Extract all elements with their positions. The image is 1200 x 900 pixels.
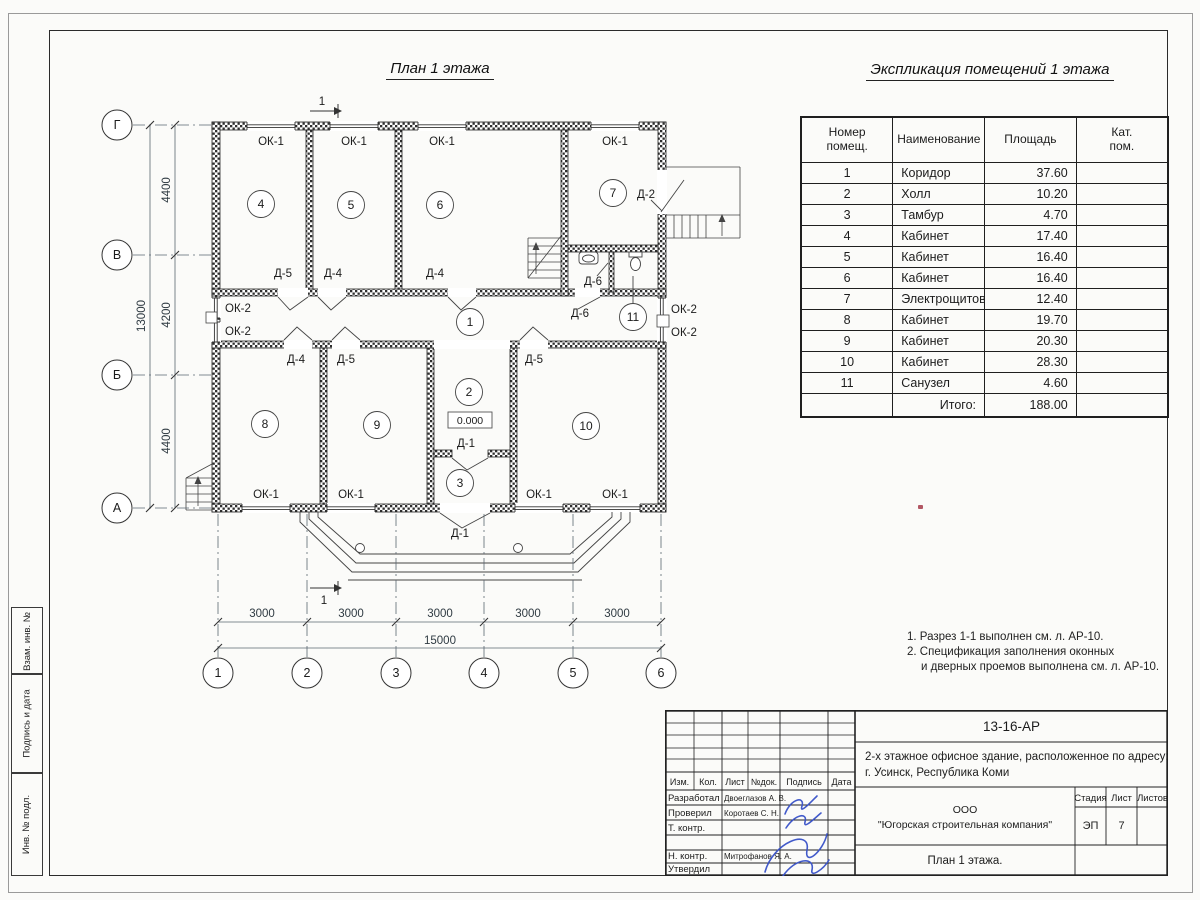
- wall-corridor-top: [212, 289, 568, 296]
- axis-label: А: [113, 501, 122, 515]
- axis-label: В: [113, 248, 121, 262]
- signature-scribble: [765, 834, 827, 872]
- window-label: ОК-2: [225, 326, 251, 338]
- stairs: [186, 167, 740, 510]
- person-name: Коротаев С. Н.: [724, 809, 779, 818]
- door-label: Д-4: [324, 268, 343, 280]
- window-label: ОК-1: [429, 136, 455, 148]
- window-label: ОК-1: [602, 136, 628, 148]
- room-number: 7: [610, 186, 617, 200]
- room-number: 3: [457, 476, 464, 490]
- section-label: 1: [319, 96, 325, 108]
- dimension-labels: 4400 4200 4400 13000 3000 3000 3000 3000…: [136, 177, 630, 647]
- axis-label: 5: [570, 666, 577, 680]
- axis-label: 6: [658, 666, 665, 680]
- level-mark: 0.000: [448, 412, 492, 428]
- door-d6-leader: [597, 263, 608, 276]
- room-number: 9: [374, 418, 381, 432]
- window-label: ОК-2: [671, 327, 697, 339]
- section-label: 1: [321, 595, 327, 607]
- dim-label: 3000: [249, 608, 275, 620]
- room-number: 5: [348, 198, 355, 212]
- wall-room7-left: [561, 130, 568, 296]
- company-name: ООО: [953, 804, 978, 816]
- col-header: Лист: [725, 777, 745, 787]
- axis-label: 3: [393, 666, 400, 680]
- room-number: 2: [466, 385, 473, 399]
- window-label: ОК-1: [602, 489, 628, 501]
- axis-label: 2: [304, 666, 311, 680]
- window-label: ОК-1: [341, 136, 367, 148]
- sheet-label: Лист: [1111, 793, 1132, 804]
- room-number: 11: [627, 310, 640, 324]
- door-label: Д-4: [426, 268, 445, 280]
- role-label: Н. контр.: [668, 851, 707, 862]
- wall-hall-left: [427, 348, 434, 504]
- window-label: ОК-1: [338, 489, 364, 501]
- window-label: ОК-2: [225, 303, 251, 315]
- door-label: Д-5: [337, 354, 355, 366]
- door-label: Д-4: [287, 354, 306, 366]
- dimension-lines: [150, 125, 661, 648]
- walls: [212, 122, 666, 512]
- door-label: Д-6: [571, 308, 589, 320]
- dim-label: 4400: [161, 428, 173, 454]
- window-label: ОК-1: [258, 136, 284, 148]
- door-label: Д-5: [274, 268, 292, 280]
- wall-room7-bottom: [568, 245, 658, 252]
- dim-label: 3000: [338, 608, 364, 620]
- wall-divider-8-9: [320, 348, 327, 504]
- door-label: Д-1: [457, 438, 475, 450]
- toilet-bowl-icon: [631, 258, 641, 271]
- porch-column: [356, 544, 365, 553]
- role-label: Т. контр.: [668, 823, 705, 834]
- drawing-title: План 1 этажа.: [928, 855, 1003, 867]
- project-description: 2-х этажное офисное здание, расположенно…: [865, 751, 1168, 763]
- role-label: Разработал: [668, 793, 720, 804]
- person-name: Двоеглазов А. В.: [724, 794, 786, 803]
- wall-divider-5-6: [395, 130, 402, 289]
- stage-label: Стадия: [1074, 793, 1106, 804]
- col-header: Изм.: [670, 777, 689, 787]
- sheets-label: Листов: [1137, 793, 1168, 804]
- dim-label: 15000: [424, 635, 456, 647]
- axis-label: Б: [113, 368, 121, 382]
- room-number: 8: [262, 417, 269, 431]
- window-label: ОК-1: [253, 489, 279, 501]
- document-number: 13-16-АР: [983, 719, 1040, 734]
- wall-hall-right: [510, 348, 517, 504]
- company-name: "Югорская строительная компания": [878, 819, 1052, 831]
- red-speck-artifact: [918, 505, 923, 509]
- stage-value: ЭП: [1083, 820, 1099, 832]
- role-label: Проверил: [668, 808, 712, 819]
- wall-sanitary-divider: [609, 252, 614, 292]
- sheet-value: 7: [1118, 820, 1124, 832]
- door-label: Д-5: [525, 354, 543, 366]
- door-label: Д-6: [584, 276, 602, 288]
- axis-label: 1: [215, 666, 222, 680]
- signatures: [765, 796, 829, 876]
- project-description: г. Усинск, Республика Коми: [865, 767, 1009, 779]
- level-value: 0.000: [457, 415, 483, 427]
- wall-divider-4-5: [306, 130, 313, 289]
- room-number: 4: [258, 197, 265, 211]
- axis-labels: Г В Б А 1 2 3 4 5 6: [113, 118, 665, 680]
- dim-label: 4400: [161, 177, 173, 203]
- dim-label: 13000: [136, 300, 148, 332]
- wall-tambour-stub-left: [434, 450, 452, 457]
- room-number: 10: [579, 419, 593, 433]
- door-label: Д-1: [451, 528, 469, 540]
- toilet-tank-icon: [629, 252, 642, 257]
- entrance-porch: [300, 512, 630, 580]
- title-block: Изм. Кол. Лист №док. Подпись Дата Разраб…: [665, 710, 1168, 876]
- room-number: 6: [437, 198, 444, 212]
- dim-label: 4200: [161, 302, 173, 328]
- wall-tambour-stub-right: [488, 450, 510, 457]
- wall-notches: [206, 312, 669, 327]
- door-label: Д-2: [637, 189, 655, 201]
- room-number-labels: 1 2 3 4 5 6 7 8 9 10 11: [258, 186, 640, 490]
- axis-circles: [102, 110, 676, 688]
- window-label: ОК-1: [526, 489, 552, 501]
- col-header: Подпись: [786, 777, 822, 787]
- signature-scribble: [786, 813, 821, 828]
- col-header: №док.: [751, 777, 777, 787]
- porch-column: [514, 544, 523, 553]
- room-number: 1: [467, 315, 474, 329]
- dim-label: 3000: [515, 608, 541, 620]
- dim-label: 3000: [427, 608, 453, 620]
- role-label: Утвердил: [668, 864, 710, 875]
- signature-scribble: [783, 860, 829, 876]
- dim-label: 3000: [604, 608, 630, 620]
- col-header: Кол.: [699, 777, 717, 787]
- person-name: Митрофанов Я. А.: [724, 852, 792, 861]
- window-label: ОК-2: [671, 304, 697, 316]
- axis-label: Г: [114, 118, 121, 132]
- col-header: Дата: [832, 777, 852, 787]
- axis-label: 4: [481, 666, 488, 680]
